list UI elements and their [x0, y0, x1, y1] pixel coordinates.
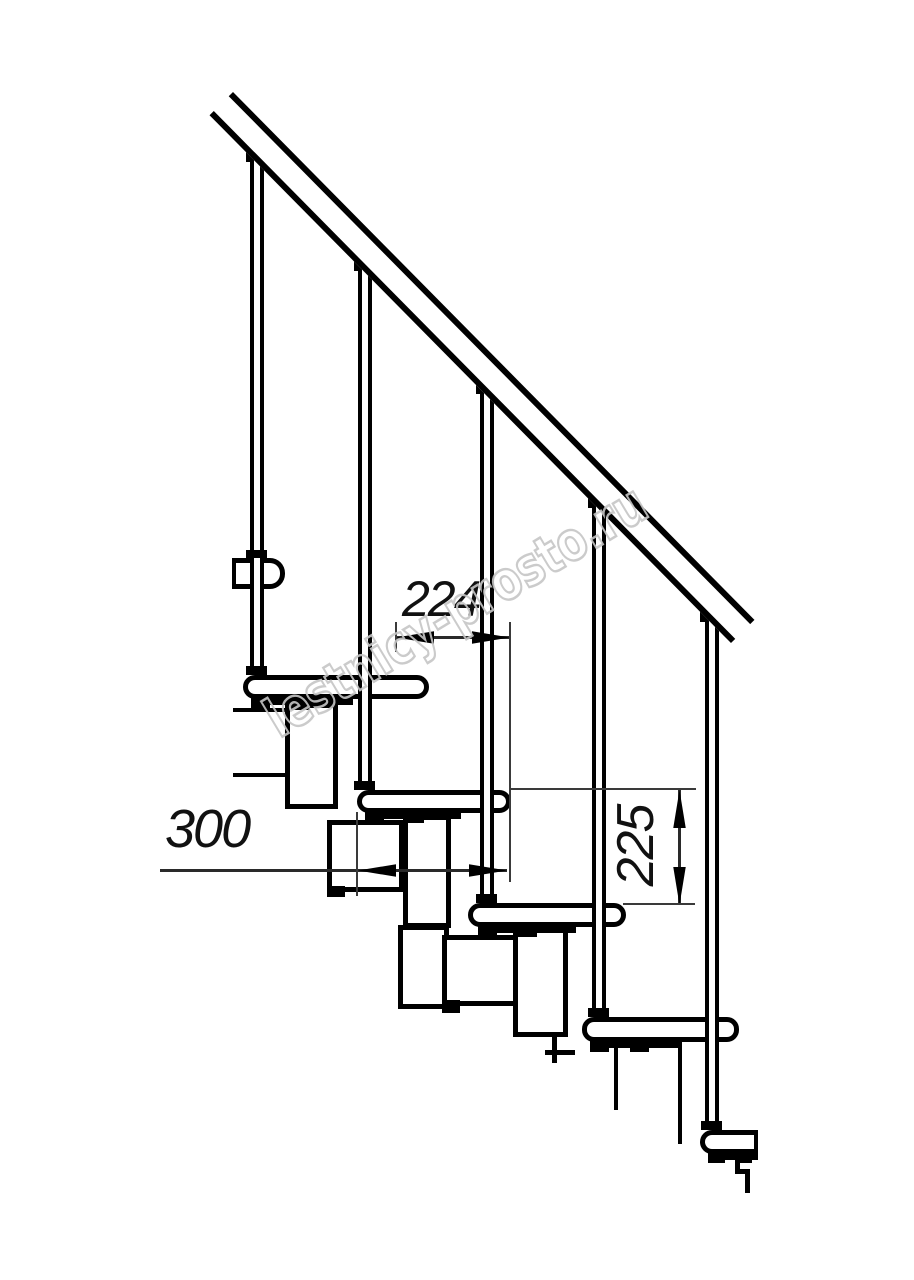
dimension-rise-extension-top — [510, 788, 696, 790]
baluster-1 — [250, 152, 264, 675]
baluster-2 — [358, 261, 372, 790]
dimension-depth-label: 300 — [165, 798, 249, 860]
bracket-foot — [630, 1040, 649, 1052]
module-2-tab — [327, 886, 345, 897]
staircase-drawing: 224 300 225 lestnicy-prosto.ru — [0, 0, 914, 1280]
baluster-3 — [480, 384, 494, 903]
module-6-stub-horizontal — [545, 1050, 575, 1055]
dimension-depth-extension-left — [356, 812, 358, 896]
bracket-foot — [590, 1040, 609, 1052]
module-7-cut-line-right — [678, 1044, 682, 1144]
baluster-1-collar — [246, 666, 267, 675]
baluster-4-collar — [588, 1008, 609, 1017]
dimension-rise-extension-bottom — [623, 903, 695, 905]
bracket-foot — [518, 925, 537, 937]
module-5-tab — [442, 1000, 460, 1013]
baluster-3-collar — [476, 894, 497, 903]
bracket-foot — [478, 925, 497, 937]
baluster-2-collar — [354, 781, 375, 790]
dimension-rise-label: 225 — [591, 801, 681, 891]
bracket-foot — [708, 1152, 725, 1163]
baluster-5 — [705, 612, 719, 1130]
baluster-5-collar — [701, 1121, 722, 1130]
module-8-cut-step-v2 — [745, 1169, 750, 1193]
module-7-cut-line-left — [614, 1048, 618, 1110]
bracket-foot — [405, 811, 424, 823]
stringer-module-2 — [327, 820, 404, 892]
bracket-foot — [735, 1152, 752, 1163]
bracket-foot — [365, 811, 384, 823]
baluster-1-landing-collar — [246, 550, 267, 558]
baluster-4 — [592, 498, 606, 1017]
wall-anchor-line-bottom — [233, 773, 289, 777]
dimension-depth-line — [160, 869, 507, 872]
stringer-module-6 — [513, 926, 568, 1037]
stringer-module-5 — [442, 935, 519, 1006]
dimension-run-extension-right — [509, 622, 511, 882]
tread-5 — [700, 1130, 758, 1154]
